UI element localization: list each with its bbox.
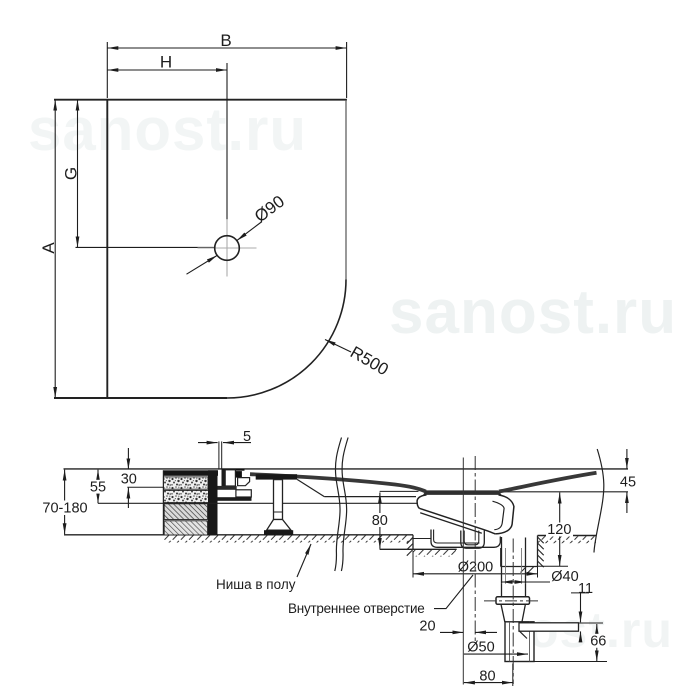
svg-text:G: G — [62, 167, 81, 180]
svg-text:Ниша в полу: Ниша в полу — [216, 577, 296, 592]
svg-text:11: 11 — [578, 581, 593, 597]
svg-text:120: 120 — [547, 522, 571, 538]
svg-text:R500: R500 — [347, 343, 392, 380]
svg-text:Ø40: Ø40 — [551, 569, 578, 585]
svg-text:Ø90: Ø90 — [251, 192, 288, 227]
svg-text:70-180: 70-180 — [42, 501, 87, 517]
svg-text:B: B — [220, 31, 231, 50]
svg-text:30: 30 — [121, 472, 137, 488]
svg-text:Внутреннее отверстие: Внутреннее отверстие — [288, 601, 425, 616]
svg-text:45: 45 — [620, 474, 636, 490]
svg-text:sanost.ru: sanost.ru — [28, 96, 307, 163]
svg-text:sanost.ru: sanost.ru — [389, 278, 677, 347]
svg-text:55: 55 — [90, 480, 106, 496]
svg-text:Ø50: Ø50 — [467, 639, 494, 655]
svg-text:A: A — [39, 242, 58, 254]
svg-text:H: H — [160, 53, 172, 72]
svg-text:5: 5 — [243, 429, 251, 445]
svg-text:80: 80 — [372, 513, 388, 529]
svg-text:20: 20 — [419, 619, 435, 635]
svg-text:80: 80 — [479, 669, 495, 685]
svg-text:66: 66 — [590, 634, 606, 650]
